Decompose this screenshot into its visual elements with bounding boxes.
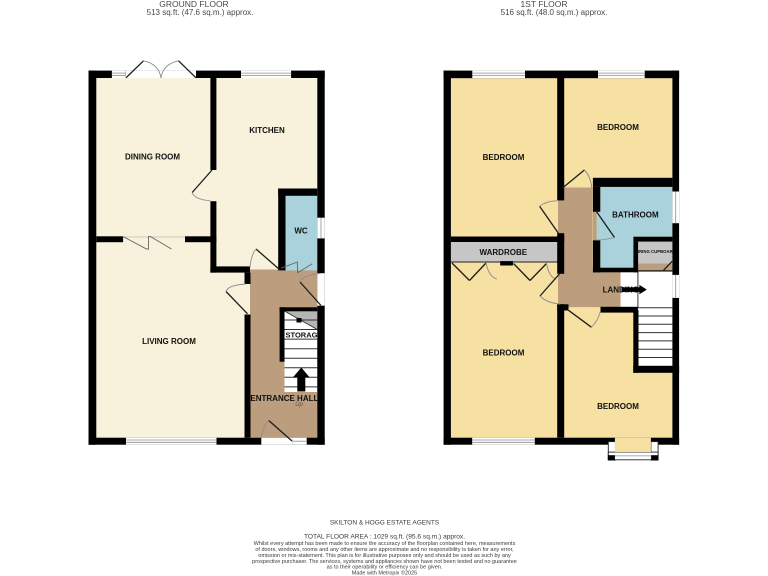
svg-text:BEDROOM: BEDROOM <box>483 153 525 162</box>
svg-text:LIVING ROOM: LIVING ROOM <box>142 337 196 346</box>
svg-text:513 sq.ft. (47.6 sq.m.) approx: 513 sq.ft. (47.6 sq.m.) approx. <box>147 8 254 17</box>
svg-text:STORAGE: STORAGE <box>286 330 323 339</box>
svg-text:Up: Up <box>295 402 303 408</box>
svg-text:ENTRANCE HALL: ENTRANCE HALL <box>250 394 318 403</box>
svg-text:BEDROOM: BEDROOM <box>597 123 639 132</box>
svg-text:516 sq.ft. (48.0 sq.m.) approx: 516 sq.ft. (48.0 sq.m.) approx. <box>501 8 608 17</box>
svg-text:KITCHEN: KITCHEN <box>249 126 285 135</box>
svg-text:TOTAL FLOOR AREA : 1029 sq.ft.: TOTAL FLOOR AREA : 1029 sq.ft. (95.6 sq.… <box>304 534 465 541</box>
svg-text:WC: WC <box>294 226 308 235</box>
svg-text:BATHROOM: BATHROOM <box>612 211 659 220</box>
svg-text:SKILTON & HOGG ESTATE AGENTS: SKILTON & HOGG ESTATE AGENTS <box>330 520 440 527</box>
svg-text:BEDROOM: BEDROOM <box>483 348 525 357</box>
svg-text:Made with Metropix ©2025: Made with Metropix ©2025 <box>352 570 418 576</box>
svg-text:BEDROOM: BEDROOM <box>597 402 639 411</box>
svg-text:WARDROBE: WARDROBE <box>480 248 528 257</box>
svg-text:AIRING CUPBOARD: AIRING CUPBOARD <box>635 249 676 254</box>
svg-text:DINING ROOM: DINING ROOM <box>125 153 180 162</box>
